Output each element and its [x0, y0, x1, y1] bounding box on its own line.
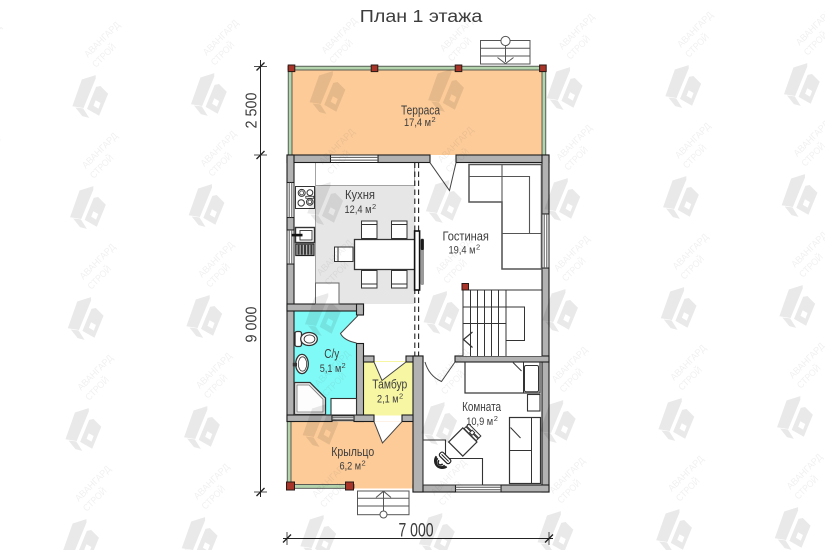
svg-text:Крыльцо: Крыльцо	[331, 444, 374, 459]
svg-text:2 500: 2 500	[244, 92, 261, 128]
svg-text:9 000: 9 000	[244, 306, 261, 342]
svg-text:2: 2	[432, 115, 436, 124]
svg-text:Кухня: Кухня	[345, 187, 375, 202]
svg-text:2: 2	[362, 459, 366, 468]
svg-text:Тамбур: Тамбур	[372, 377, 407, 392]
svg-text:12,4 м: 12,4 м	[345, 204, 372, 216]
svg-text:2,1 м: 2,1 м	[377, 393, 399, 405]
svg-text:10,9 м: 10,9 м	[466, 416, 493, 428]
svg-text:2: 2	[399, 391, 403, 400]
svg-text:2: 2	[476, 243, 480, 252]
svg-text:2: 2	[494, 414, 498, 423]
svg-text:Комната: Комната	[462, 399, 502, 414]
svg-text:17,4 м: 17,4 м	[404, 117, 431, 129]
svg-text:2: 2	[372, 202, 376, 211]
